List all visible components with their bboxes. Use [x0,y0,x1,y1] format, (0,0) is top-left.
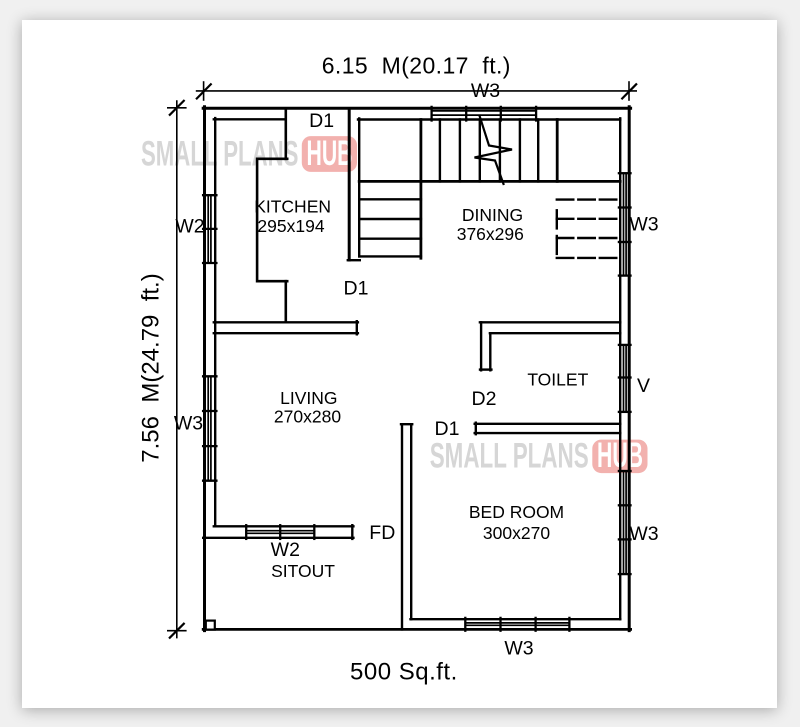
svg-text:BED ROOM: BED ROOM [469,502,564,522]
svg-text:W3: W3 [174,413,203,435]
svg-text:V: V [637,375,650,397]
svg-text:D1: D1 [344,278,369,300]
svg-text:D1: D1 [435,418,460,440]
svg-text:DINING: DINING [462,205,523,225]
svg-text:W3: W3 [471,80,500,102]
svg-text:376x296: 376x296 [457,224,524,244]
svg-text:W3: W3 [504,638,533,660]
svg-text:500 Sq.ft.: 500 Sq.ft. [350,658,458,685]
svg-text:D2: D2 [472,388,497,410]
svg-text:FD: FD [369,522,395,544]
svg-text:7.56 M(24.79 ft.): 7.56 M(24.79 ft.) [137,273,164,462]
svg-text:SITOUT: SITOUT [271,561,335,581]
svg-text:270x280: 270x280 [274,407,341,427]
svg-text:6.15 M(20.17 ft.): 6.15 M(20.17 ft.) [322,53,511,79]
svg-text:KITCHEN: KITCHEN [254,197,331,217]
svg-text:LIVING: LIVING [280,388,337,408]
svg-text:HUB: HUB [307,133,353,173]
svg-text:SMALL PLANS: SMALL PLANS [430,435,589,475]
svg-text:W2: W2 [175,216,204,238]
svg-text:W3: W3 [629,523,658,545]
svg-text:SMALL PLANS: SMALL PLANS [141,133,299,173]
svg-text:TOILET: TOILET [527,370,588,390]
svg-text:D1: D1 [309,110,334,132]
svg-text:W3: W3 [629,213,658,235]
svg-text:300x270: 300x270 [483,523,550,543]
svg-text:W2: W2 [271,539,300,561]
svg-text:295x194: 295x194 [257,216,324,236]
